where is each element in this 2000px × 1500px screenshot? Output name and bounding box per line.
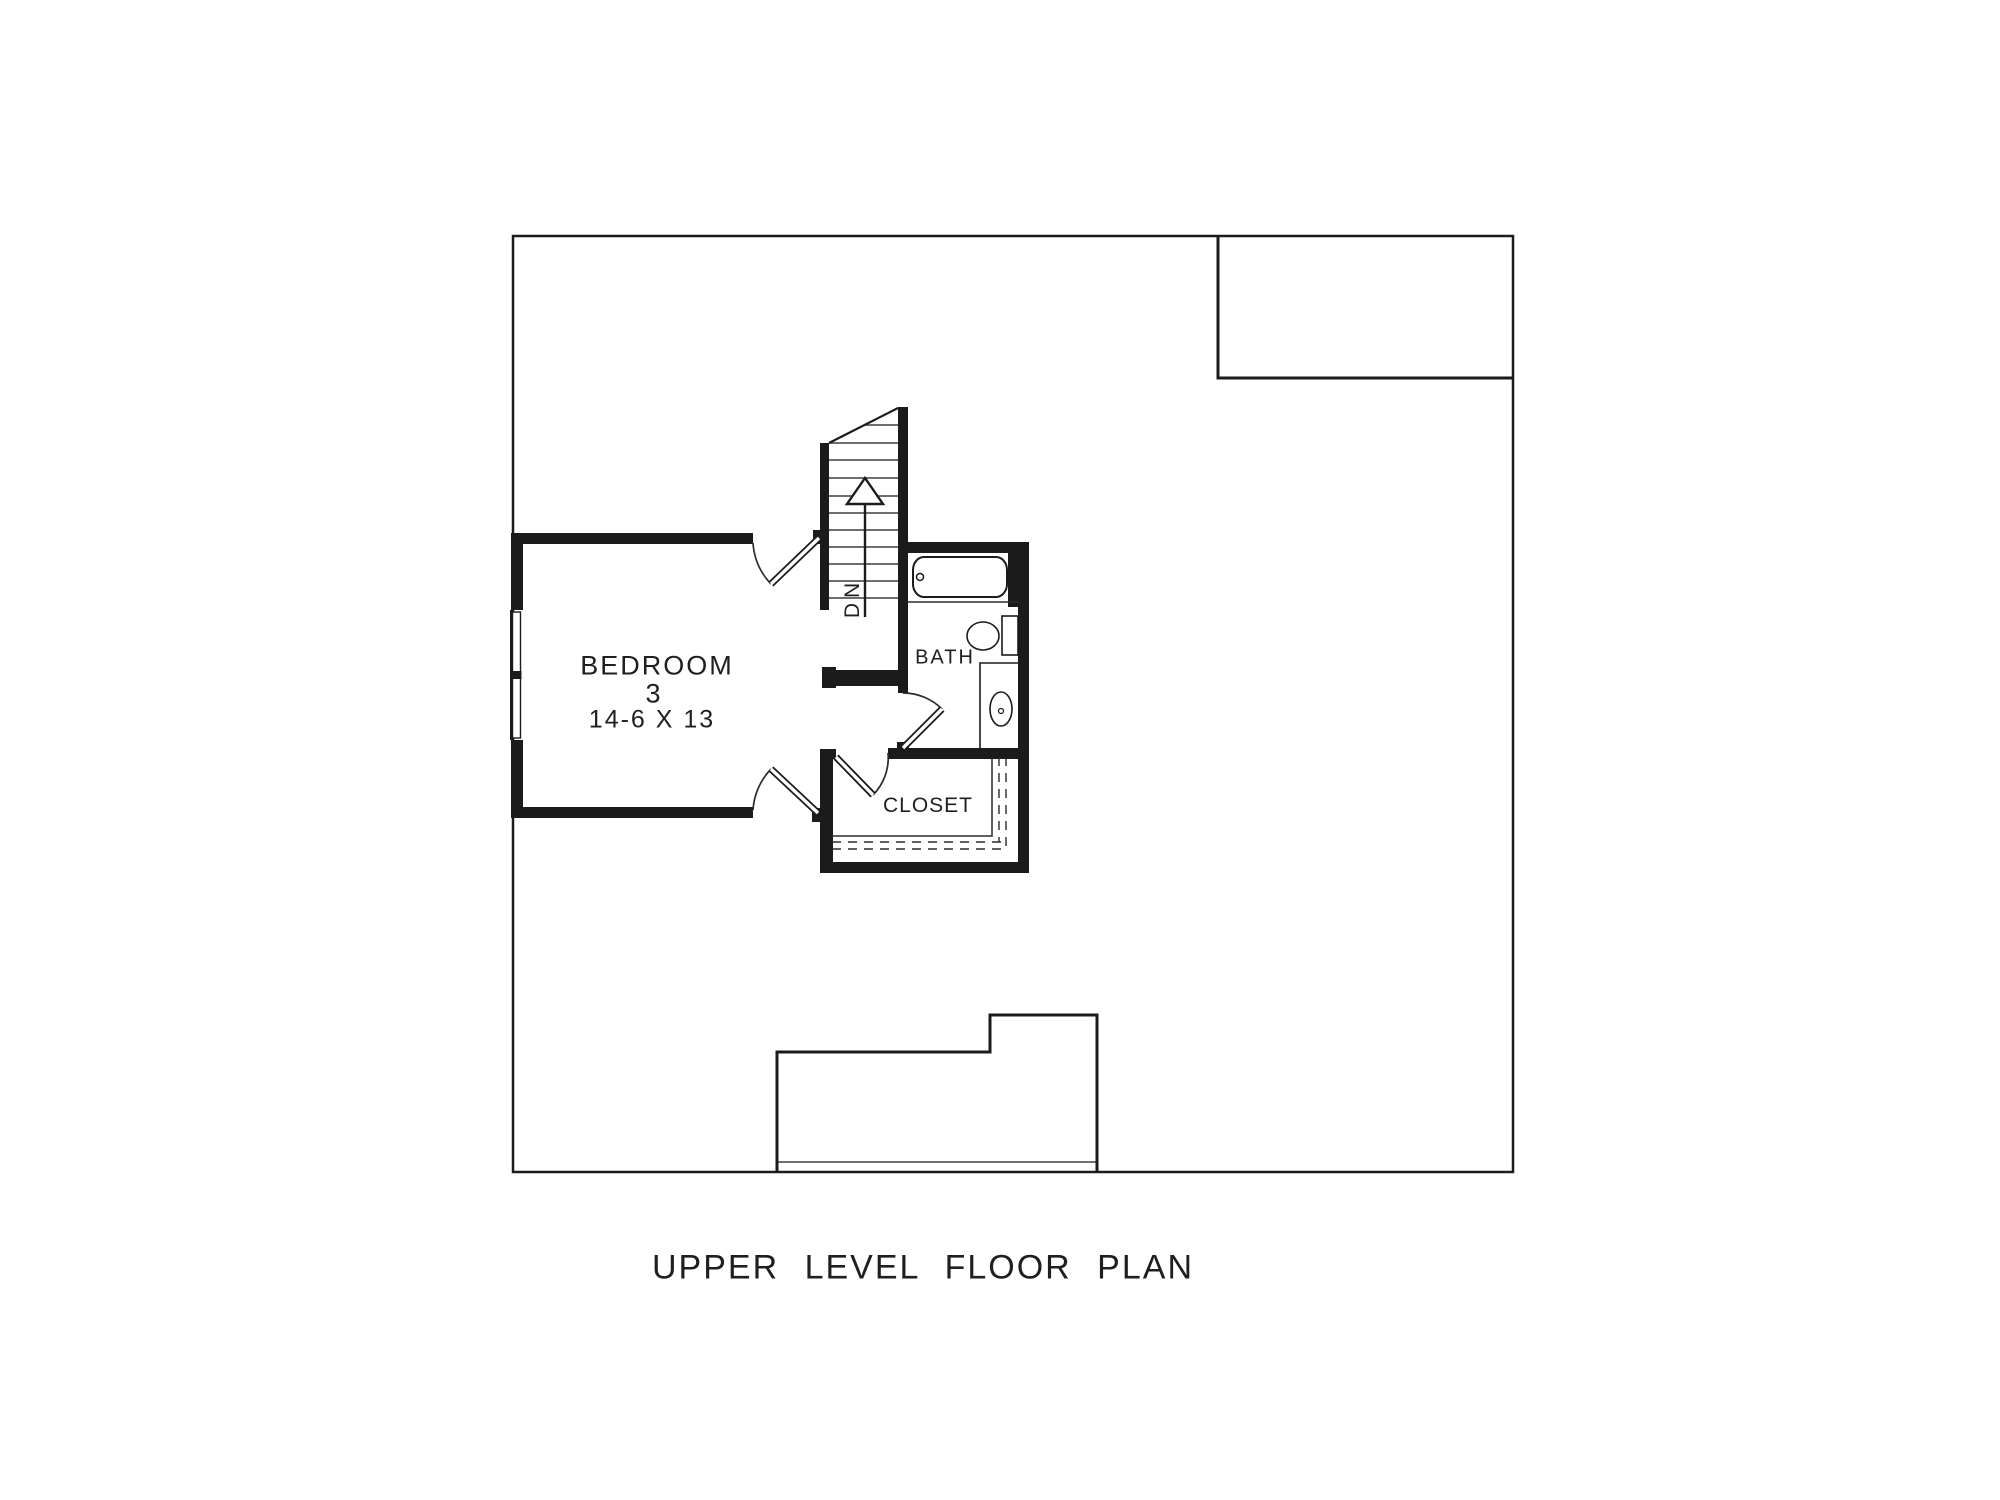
door-bath xyxy=(903,693,942,748)
vanity-sink-drain xyxy=(999,709,1004,714)
plan-title: UPPER LEVEL FLOOR PLAN xyxy=(652,1249,1194,1288)
building-outline xyxy=(513,236,1513,1172)
door-bedroom-bottom xyxy=(753,769,818,813)
door-bedroom-top xyxy=(753,538,819,584)
door-swing-arc xyxy=(753,543,771,584)
outline-main-rect xyxy=(513,236,1513,1172)
wall-stair-left xyxy=(820,443,829,610)
door-leaf-inner xyxy=(836,757,873,795)
door-swing-arc xyxy=(873,753,888,795)
wall-bedroom-top xyxy=(511,533,753,544)
wall-tub-jog xyxy=(1008,542,1029,607)
window-sash-mark xyxy=(512,671,522,679)
door-leaf-inner xyxy=(771,538,819,584)
bath-label: BATH xyxy=(915,647,975,670)
door-leaf-inner xyxy=(903,709,942,748)
outline-topright-section xyxy=(1218,237,1512,378)
wall-bedroom-bottom xyxy=(511,807,753,818)
window-icon xyxy=(511,610,522,740)
vanity-sink-icon xyxy=(980,663,1018,750)
door-swing-arc xyxy=(903,693,942,709)
door-swing-arc xyxy=(753,769,771,810)
wall-stair-bottom-cap xyxy=(822,667,836,688)
closet-label: CLOSET xyxy=(883,794,973,818)
wall-bedroom-left-lower xyxy=(511,740,523,818)
stair-arrow-head xyxy=(847,478,883,504)
bathtub-body xyxy=(913,557,1007,597)
door-closet xyxy=(836,753,888,795)
outline-bottom-step xyxy=(777,1015,1097,1171)
wall-bath-closet-mid xyxy=(888,748,1029,759)
floor-plan-canvas: BEDROOM 3 14-6 X 13 BATH CLOSET DN UPPER… xyxy=(0,0,2000,1500)
bathtub-icon xyxy=(907,557,1018,602)
bedroom-name-label: BEDROOM xyxy=(580,651,734,682)
toilet-tank xyxy=(1002,616,1018,655)
door-leaf-inner xyxy=(771,769,818,813)
wall-closet-bottom xyxy=(820,862,1029,873)
bedroom-dimensions-label: 14-6 X 13 xyxy=(589,706,715,735)
wall-bedroom-left-upper xyxy=(511,533,523,610)
stair-down-label: DN xyxy=(841,578,865,618)
